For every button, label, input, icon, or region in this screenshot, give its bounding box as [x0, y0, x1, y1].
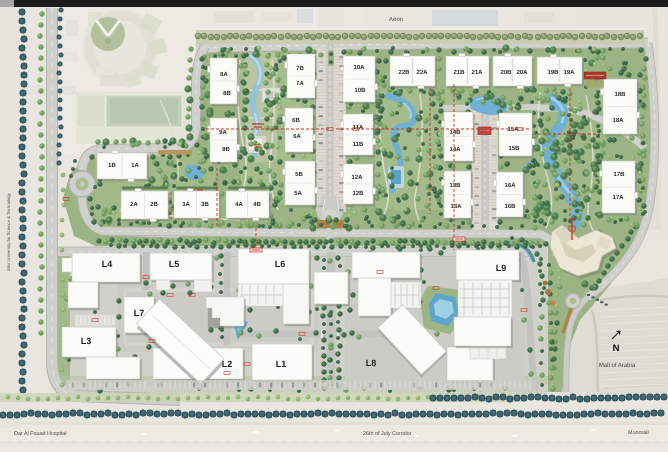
svg-text:L9: L9 [496, 263, 507, 273]
svg-text:6A: 6A [293, 133, 301, 140]
svg-text:9A: 9A [219, 129, 227, 136]
svg-text:7B: 7B [296, 65, 304, 72]
svg-text:2B: 2B [150, 201, 158, 208]
svg-text:Misr University for Science &: Misr University for Science & Technology [6, 192, 11, 271]
svg-text:15A: 15A [507, 126, 519, 133]
svg-text:14B: 14B [449, 129, 461, 136]
svg-text:26th of July Corridor: 26th of July Corridor [363, 431, 412, 437]
svg-text:21A: 21A [471, 69, 483, 76]
svg-text:18B: 18B [614, 91, 626, 98]
svg-text:L6: L6 [275, 259, 286, 269]
svg-text:15B: 15B [508, 145, 520, 152]
svg-text:22A: 22A [416, 69, 428, 76]
svg-text:16A: 16A [504, 182, 516, 189]
svg-text:20B: 20B [500, 69, 512, 76]
svg-text:L5: L5 [169, 259, 180, 269]
svg-text:7A: 7A [296, 80, 304, 87]
svg-text:8A: 8A [220, 71, 228, 78]
svg-text:N: N [613, 343, 620, 354]
svg-text:17A: 17A [612, 194, 624, 201]
svg-text:13A: 13A [450, 203, 462, 210]
svg-text:6B: 6B [292, 117, 300, 124]
svg-text:9B: 9B [222, 146, 230, 153]
svg-text:L8: L8 [366, 358, 377, 368]
svg-text:1A: 1A [131, 162, 139, 169]
svg-text:8B: 8B [223, 90, 231, 97]
svg-text:12B: 12B [352, 190, 364, 197]
svg-text:10A: 10A [353, 64, 365, 71]
svg-text:5B: 5B [295, 171, 303, 178]
svg-text:5A: 5A [294, 190, 302, 197]
svg-text:3B: 3B [201, 201, 209, 208]
svg-text:19B: 19B [547, 69, 559, 76]
svg-text:Monorail: Monorail [628, 430, 649, 436]
svg-text:18A: 18A [612, 117, 624, 124]
svg-text:21B: 21B [453, 69, 465, 76]
svg-text:2A: 2A [130, 201, 138, 208]
svg-text:Dar Al Fouad Hospital: Dar Al Fouad Hospital [14, 431, 66, 437]
svg-text:17B: 17B [613, 171, 625, 178]
svg-text:12A: 12A [351, 174, 363, 181]
svg-text:13B: 13B [449, 182, 461, 189]
svg-text:3A: 3A [182, 201, 190, 208]
svg-text:20A: 20A [516, 69, 528, 76]
svg-text:1B: 1B [108, 162, 116, 169]
svg-text:L7: L7 [134, 308, 145, 318]
svg-text:10B: 10B [354, 87, 366, 94]
svg-text:16B: 16B [504, 203, 516, 210]
svg-text:L3: L3 [81, 336, 92, 346]
svg-text:Aeon: Aeon [389, 16, 403, 23]
svg-text:L4: L4 [102, 259, 113, 269]
svg-text:14A: 14A [449, 146, 461, 153]
svg-text:19A: 19A [563, 69, 575, 76]
svg-text:11B: 11B [353, 141, 364, 148]
svg-text:22B: 22B [398, 69, 410, 76]
svg-text:Mall of Arabia: Mall of Arabia [599, 362, 636, 369]
svg-text:L1: L1 [276, 359, 287, 369]
svg-text:4A: 4A [235, 201, 243, 208]
svg-text:4B: 4B [253, 201, 261, 208]
